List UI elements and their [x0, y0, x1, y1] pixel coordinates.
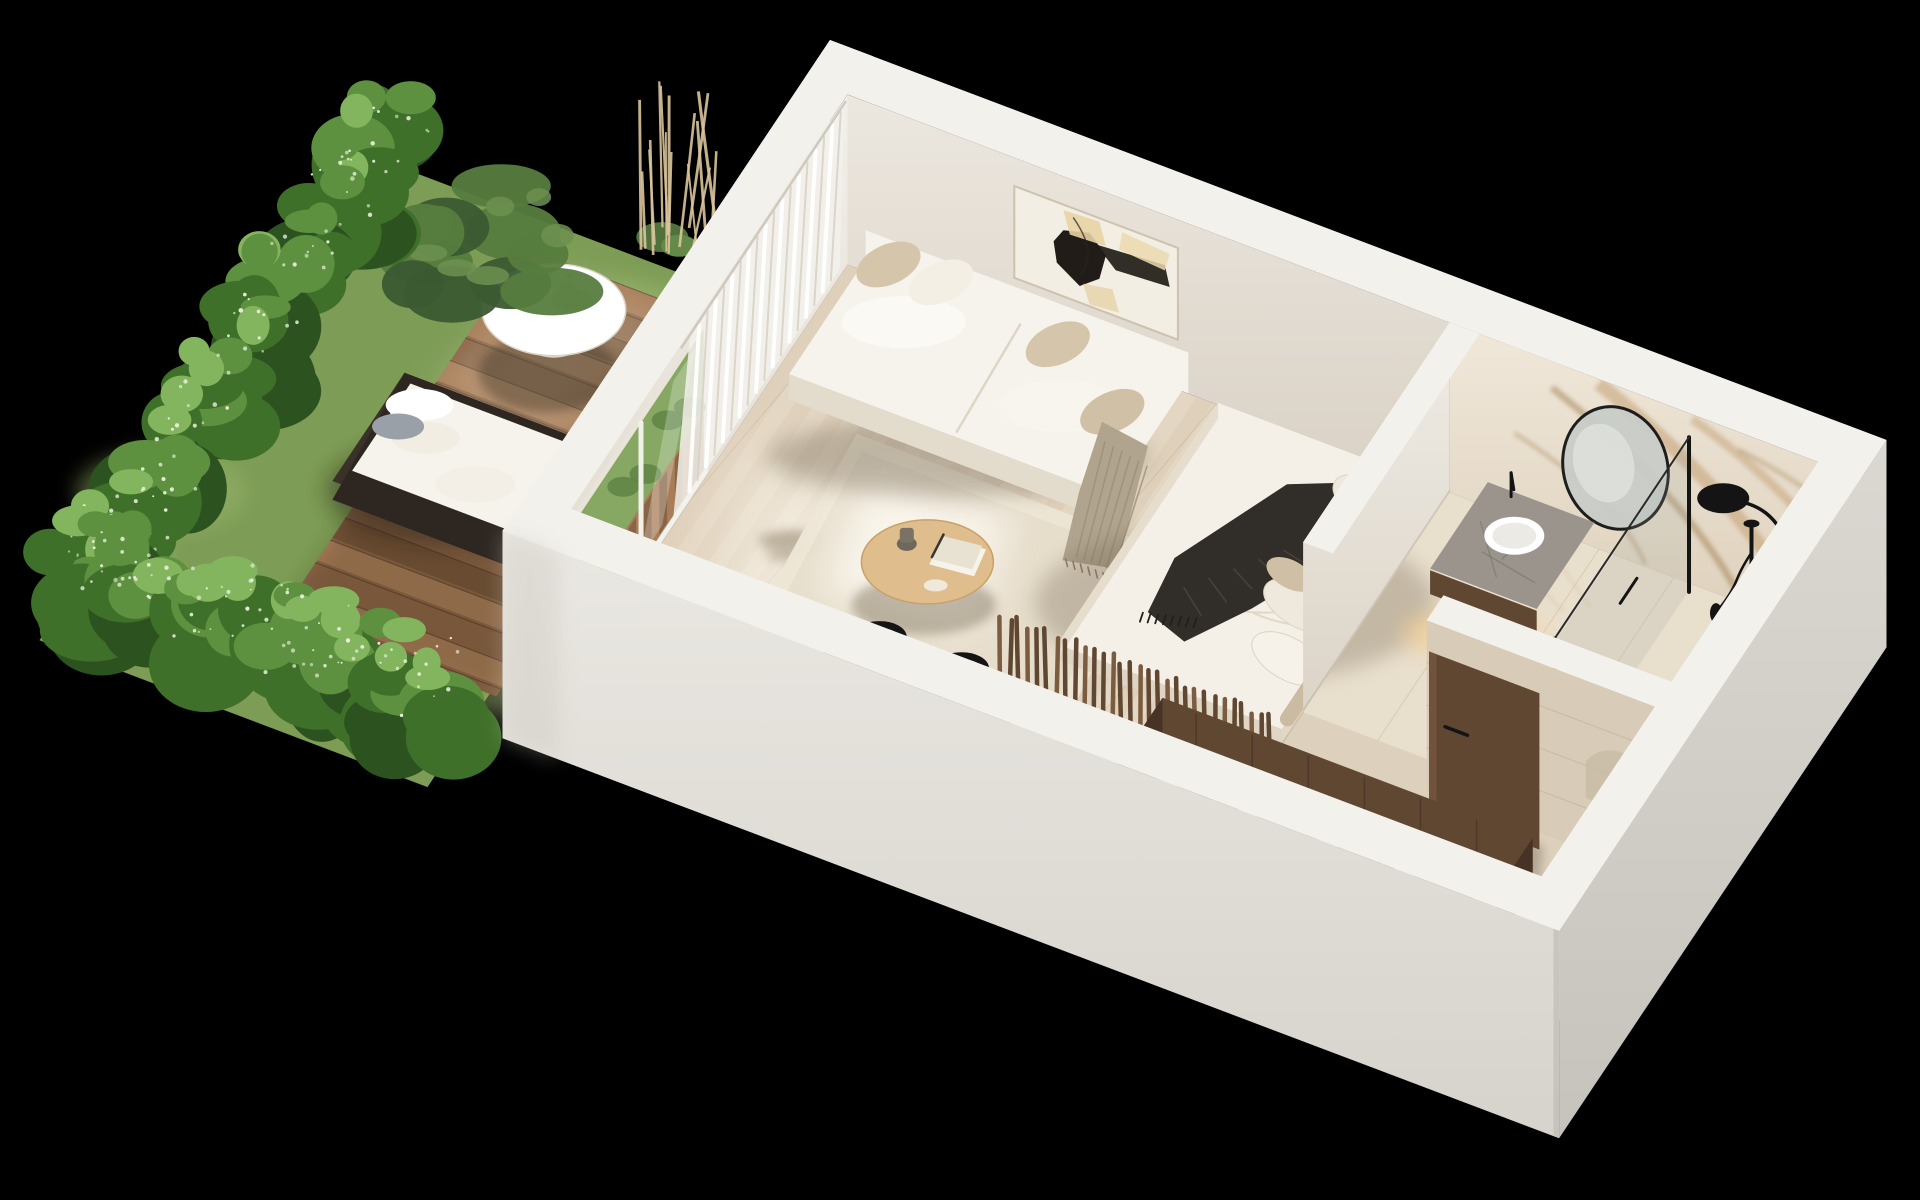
pine-highlight: [526, 188, 551, 206]
hedge-speckle: [227, 590, 231, 594]
hedge-blob: [403, 686, 490, 748]
hedge-speckle: [243, 346, 247, 350]
hedge-speckle: [319, 169, 321, 171]
hedge-speckle: [282, 263, 285, 266]
hedge-speckle: [141, 467, 145, 471]
hedge-speckle: [168, 417, 170, 419]
pine-highlight: [437, 259, 476, 276]
hedge-speckle: [193, 629, 196, 632]
hedge-speckle: [286, 588, 289, 591]
pine-highlight: [486, 197, 514, 217]
hedge-speckle: [121, 577, 125, 581]
hedge-blob: [241, 234, 277, 270]
hedge-speckle: [285, 324, 289, 328]
hedge-speckle: [167, 576, 171, 580]
hedge-blob: [386, 81, 436, 114]
hedge-speckle: [307, 251, 309, 253]
hedge-speckle: [262, 313, 265, 316]
hedge-speckle: [152, 495, 154, 497]
hedge-speckle: [164, 566, 168, 570]
hedge-speckle: [414, 652, 417, 655]
hedge-speckle: [232, 635, 234, 637]
hedge-speckle: [283, 235, 287, 239]
hedge-speckle: [348, 605, 350, 607]
hedge-speckle: [128, 576, 131, 579]
hedge-speckle: [243, 293, 247, 297]
hedge-speckle: [390, 648, 393, 651]
hedge-speckle: [368, 213, 372, 217]
hedge-speckle: [193, 424, 197, 428]
hedge-speckle: [171, 428, 174, 431]
pine-blob: [382, 260, 444, 308]
hedge-speckle: [245, 607, 249, 611]
hedge-speckle: [187, 404, 190, 407]
hedge-speckle: [323, 664, 326, 667]
hedge-speckle: [352, 657, 356, 661]
hedge-speckle: [425, 129, 428, 132]
hedge-blob: [321, 601, 361, 639]
hedge-speckle: [310, 663, 313, 666]
daybed-gray-cushion: [372, 414, 424, 440]
hedge-speckle: [179, 385, 182, 388]
hedge-speckle: [338, 161, 342, 165]
hedge-speckle: [242, 624, 245, 627]
hedge-speckle: [206, 587, 208, 589]
hedge-speckle: [100, 564, 103, 567]
hedge-speckle: [271, 627, 274, 630]
hedge-speckle: [233, 312, 235, 314]
facade-corner-shade: [1554, 929, 1560, 1139]
hedge-speckle: [348, 150, 351, 153]
hedge-speckle: [93, 546, 96, 549]
hedge-speckle: [250, 579, 253, 582]
decor-bowl: [924, 579, 948, 591]
hedge-speckle: [172, 634, 175, 637]
hedge-speckle: [250, 563, 254, 567]
vessel-sink-inner: [1492, 523, 1536, 549]
hedge-speckle: [227, 334, 230, 337]
hedge-speckle: [367, 204, 370, 207]
hedge-speckle: [403, 659, 407, 663]
hedge-speckle: [339, 223, 342, 226]
hedge-speckle: [264, 670, 268, 674]
sofa-seat-cushion: [842, 296, 966, 348]
hedge-speckle: [183, 379, 187, 383]
hedge-speckle: [115, 494, 119, 498]
hedge-speckle: [264, 618, 268, 622]
hedge-speckle: [446, 687, 450, 691]
hedge-speckle: [198, 631, 200, 633]
hedge-speckle: [326, 240, 329, 243]
hedge-speckle: [346, 191, 348, 193]
hedge-speckle: [337, 662, 339, 664]
hedge-speckle: [311, 173, 313, 175]
round-coffee-table: [852, 520, 996, 635]
hedge-speckle: [341, 155, 344, 158]
hedge-speckle: [396, 667, 399, 670]
hedge-speckle: [159, 463, 163, 467]
facade-corner-shade: [503, 531, 559, 760]
hedge-speckle: [456, 650, 460, 654]
hedge-speckle: [384, 654, 387, 657]
hedge-speckle: [258, 608, 261, 611]
hedge-speckle: [109, 509, 113, 513]
hedge-speckle: [300, 594, 304, 598]
hedge-speckle: [287, 641, 291, 645]
hedge-blob: [375, 642, 407, 672]
hedge-speckle: [194, 487, 198, 491]
hedge-speckle: [202, 422, 205, 425]
hedge-speckle: [406, 116, 410, 120]
hedge-speckle: [353, 172, 357, 176]
hedge-speckle: [282, 644, 286, 648]
hedge-speckle: [134, 499, 138, 503]
hedge-speckle: [147, 553, 151, 557]
hedge-speckle: [315, 674, 319, 678]
hedge-speckle: [433, 695, 435, 697]
hedge-speckle: [147, 563, 151, 567]
hedge-speckle: [117, 583, 121, 587]
pine-blob: [500, 268, 603, 316]
disc-lamp: [1697, 483, 1749, 513]
pampas-stalk: [666, 132, 667, 252]
hedge-speckle: [341, 662, 343, 664]
hedge-speckle: [350, 159, 352, 161]
hedge-speckle: [372, 160, 375, 163]
hedge-speckle: [216, 354, 220, 358]
hedge-speckle: [379, 662, 381, 664]
render-canvas: [0, 0, 1920, 1200]
hedge-speckle: [80, 586, 84, 590]
hedge-speckle: [450, 637, 452, 639]
hedge-speckle: [148, 596, 151, 599]
hedge-speckle: [120, 537, 124, 541]
hedge-speckle: [68, 550, 70, 552]
hedge-blob: [179, 337, 210, 366]
daybed-pillow: [435, 467, 515, 503]
hedge-speckle: [293, 262, 297, 266]
shower-head: [1744, 520, 1760, 528]
hedge-speckle: [312, 649, 314, 651]
hedge-speckle: [257, 310, 261, 314]
hedge-speckle: [384, 170, 387, 173]
pine-highlight: [541, 224, 574, 247]
hedge-speckle: [397, 160, 400, 163]
hedge-speckle: [417, 672, 421, 676]
hedge-speckle: [302, 663, 305, 666]
hedge-speckle: [134, 561, 137, 564]
hedge-speckle: [436, 645, 439, 648]
hedge-blob: [148, 405, 192, 435]
hedge-speckle: [318, 622, 320, 624]
hedge-speckle: [270, 242, 273, 245]
hedge-speckle: [395, 115, 399, 119]
hedge-speckle: [424, 663, 427, 666]
hedge-speckle: [166, 536, 170, 540]
hedge-speckle: [113, 578, 117, 582]
hedge-speckle: [164, 508, 168, 512]
hedge-speckle: [295, 320, 299, 324]
hedge-speckle: [133, 576, 136, 579]
hedge-blob: [319, 138, 358, 161]
hedge-speckle: [312, 245, 314, 247]
hedge-blob: [285, 596, 321, 622]
hedge-speckle: [101, 531, 103, 533]
hedge-blob: [413, 647, 441, 678]
hedge-speckle: [292, 664, 296, 668]
hedge-speckle: [155, 437, 159, 441]
hedge-speckle: [170, 487, 174, 491]
hedge-speckle: [360, 645, 364, 649]
hedge-speckle: [250, 589, 252, 591]
hedge-speckle: [322, 266, 326, 270]
hedge-speckle: [191, 567, 195, 571]
hedge-blob: [114, 510, 152, 548]
hedge-speckle: [225, 596, 227, 598]
hedge-speckle: [377, 110, 380, 113]
hedge-speckle: [221, 586, 223, 588]
hedge-blob: [382, 617, 426, 642]
hedge-speckle: [213, 402, 218, 407]
hedge-speckle: [248, 298, 250, 300]
hedge-speckle: [163, 491, 166, 494]
hedge-speckle: [150, 574, 152, 576]
hedge-speckle: [346, 638, 350, 642]
hedge-speckle: [210, 628, 212, 630]
hedge-speckle: [227, 371, 231, 375]
hedge-speckle: [347, 158, 350, 161]
vase-body: [900, 528, 914, 543]
hedge-speckle: [291, 648, 295, 652]
hedge-speckle: [371, 141, 375, 145]
hedge-speckle: [197, 596, 202, 601]
hedge-speckle: [417, 685, 420, 688]
hedge-speckle: [324, 229, 327, 232]
hedge-speckle: [101, 570, 103, 572]
hedge-speckle: [350, 176, 355, 181]
floorplan-3d-render: [0, 0, 1920, 1200]
hedge-blob: [340, 94, 373, 128]
hedge-speckle: [337, 627, 341, 631]
hedge-speckle: [225, 406, 229, 410]
hedge-speckle: [400, 714, 403, 717]
hedge-speckle: [305, 254, 309, 258]
hedge-blob: [320, 165, 365, 199]
pampas-stalk: [640, 100, 641, 250]
door-edge: [1429, 651, 1437, 810]
hedge-speckle: [261, 350, 264, 353]
hedge-speckle: [377, 642, 380, 645]
hedge-blob: [306, 202, 338, 234]
hedge-blob: [109, 469, 153, 494]
hedge-speckle: [172, 454, 176, 458]
hedge-speckle: [90, 580, 93, 583]
hedge-speckle: [345, 151, 349, 155]
hedge-speckle: [329, 655, 333, 659]
hedge-speckle: [331, 252, 334, 255]
hedge-speckle: [92, 540, 95, 543]
hedge-speckle: [258, 336, 261, 339]
hedge-speckle: [162, 477, 166, 481]
hedge-speckle: [286, 591, 290, 595]
hedge-speckle: [280, 584, 283, 587]
hedge-speckle: [355, 649, 358, 652]
hedge-speckle: [103, 539, 107, 543]
hedge-blob: [104, 543, 137, 566]
hedge-speckle: [372, 107, 375, 110]
hedge-speckle: [175, 423, 179, 427]
hedge-speckle: [239, 308, 244, 313]
hedge-speckle: [190, 613, 194, 617]
hedge-speckle: [142, 487, 146, 491]
hedge-speckle: [120, 550, 124, 554]
glass-hedge-view: [607, 477, 639, 497]
hedge-speckle: [305, 626, 308, 629]
